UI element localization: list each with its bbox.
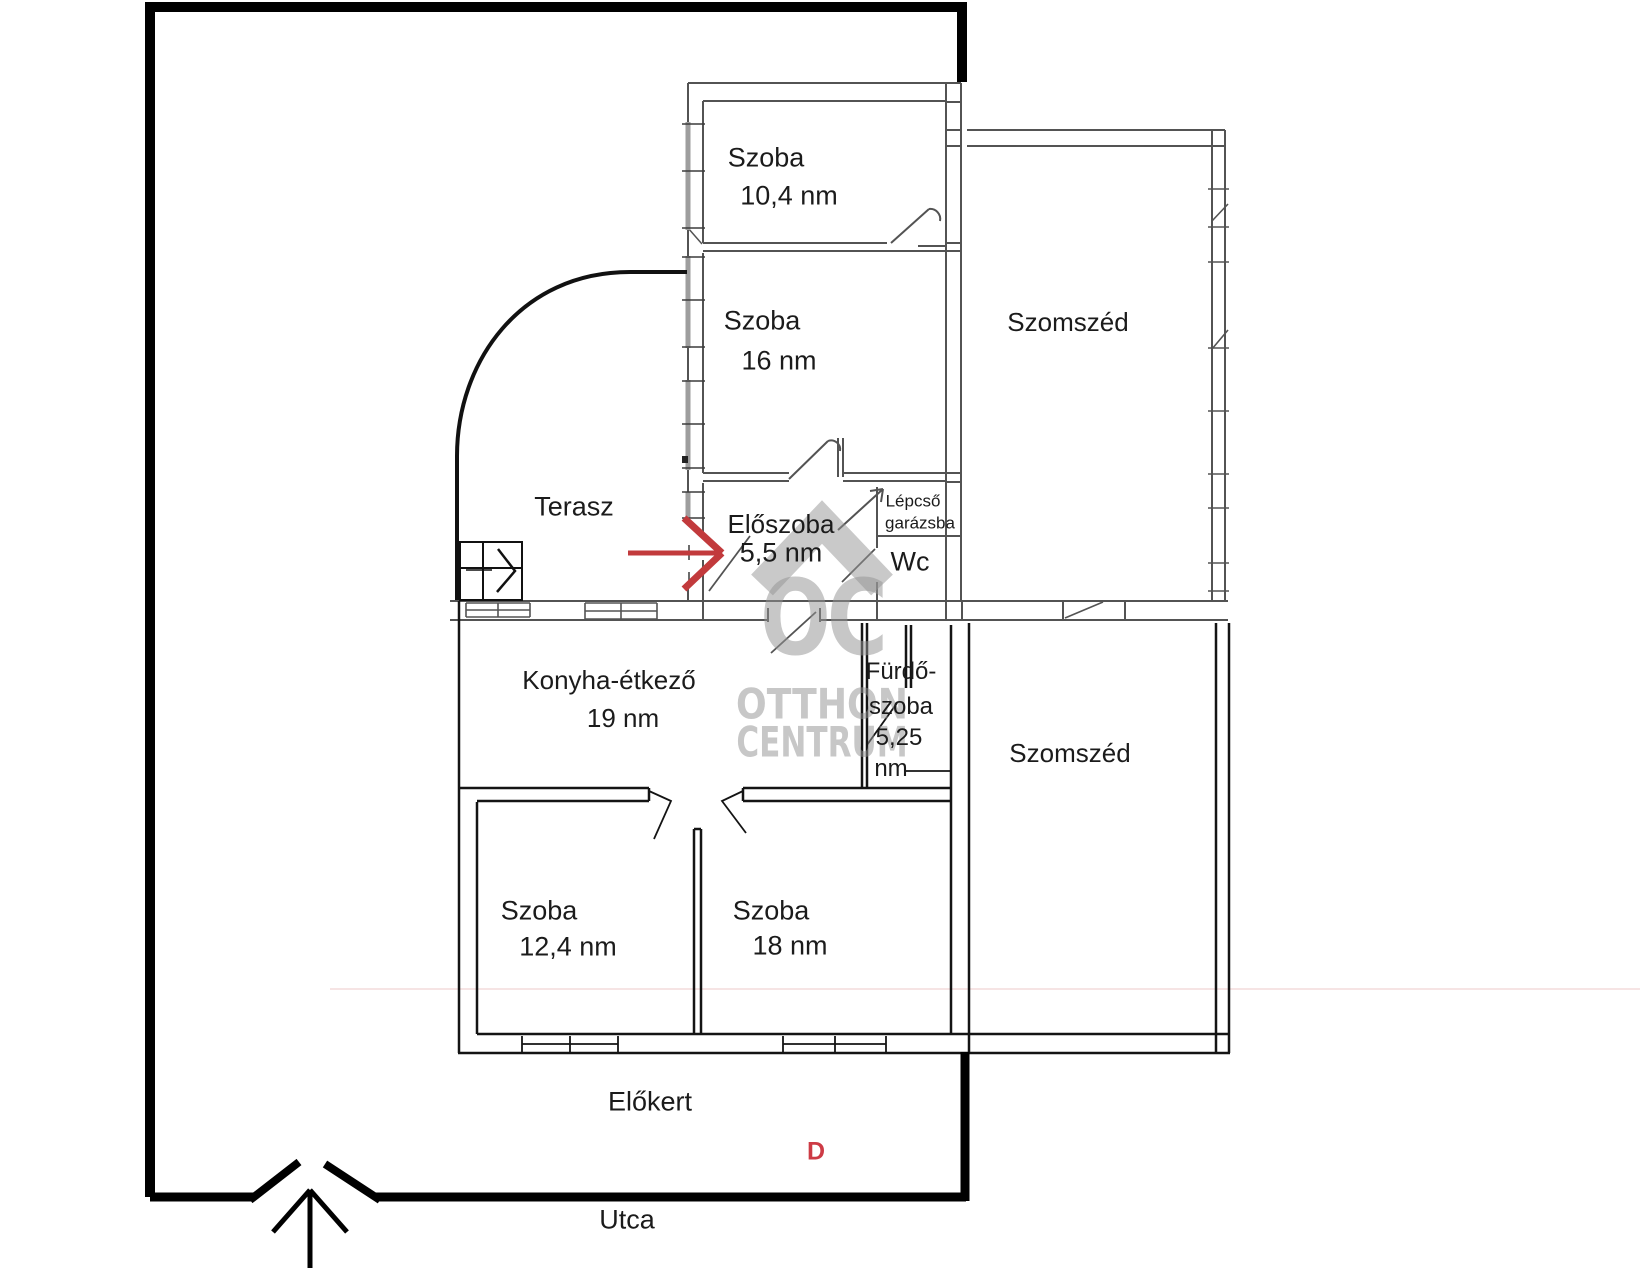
room-label-eloszoba-name: Előszoba (728, 511, 835, 537)
room-label-furdoszoba-line3: 5,25 (876, 726, 923, 750)
room-label-wc: Wc (891, 549, 930, 576)
room-label-szoba-18-area: 18 nm (752, 933, 827, 960)
entrance-arrow (628, 518, 722, 589)
direction-marker-d: D (807, 1140, 825, 1165)
room-label-szoba-16-name: Szoba (724, 308, 801, 335)
room-label-konyha-area: 19 nm (587, 705, 659, 731)
room-label-furdoszoba-line2: szoba (869, 695, 933, 719)
room-label-lepcso-line1: Lépcső (886, 493, 941, 510)
room-label-szoba-18-name: Szoba (733, 898, 810, 925)
outdoor-label-elokert: Előkert (608, 1089, 692, 1116)
window-bar-ticks (682, 124, 705, 584)
room-label-szoba-104-name: Szoba (728, 145, 805, 172)
room-label-szoba-124-name: Szoba (501, 898, 578, 925)
room-label-szoba-16-area: 16 nm (741, 348, 816, 375)
floorplan-canvas: OC OTTHON CENTRUM Szoba 10,4 nm Szoba 16… (0, 0, 1645, 1269)
room-label-szomszed-lower: Szomszéd (1009, 740, 1130, 766)
scanned-walls (450, 83, 1229, 653)
outdoor-label-utca: Utca (599, 1207, 655, 1234)
room-label-furdoszoba-line1: Fürdő- (866, 660, 937, 684)
room-label-szoba-104-area: 10,4 nm (740, 183, 838, 210)
room-label-lepcso-line2: garázsba (885, 515, 955, 532)
room-label-terasz: Terasz (534, 494, 614, 521)
north-arrow (273, 1190, 347, 1268)
room-label-szomszed-upper: Szomszéd (1007, 309, 1128, 335)
room-label-eloszoba-area: 5,5 nm (740, 540, 823, 567)
room-label-furdoszoba-line4: nm (874, 757, 907, 781)
room-label-szoba-124-area: 12,4 nm (519, 934, 617, 961)
room-label-konyha-name: Konyha-étkező (522, 667, 695, 693)
